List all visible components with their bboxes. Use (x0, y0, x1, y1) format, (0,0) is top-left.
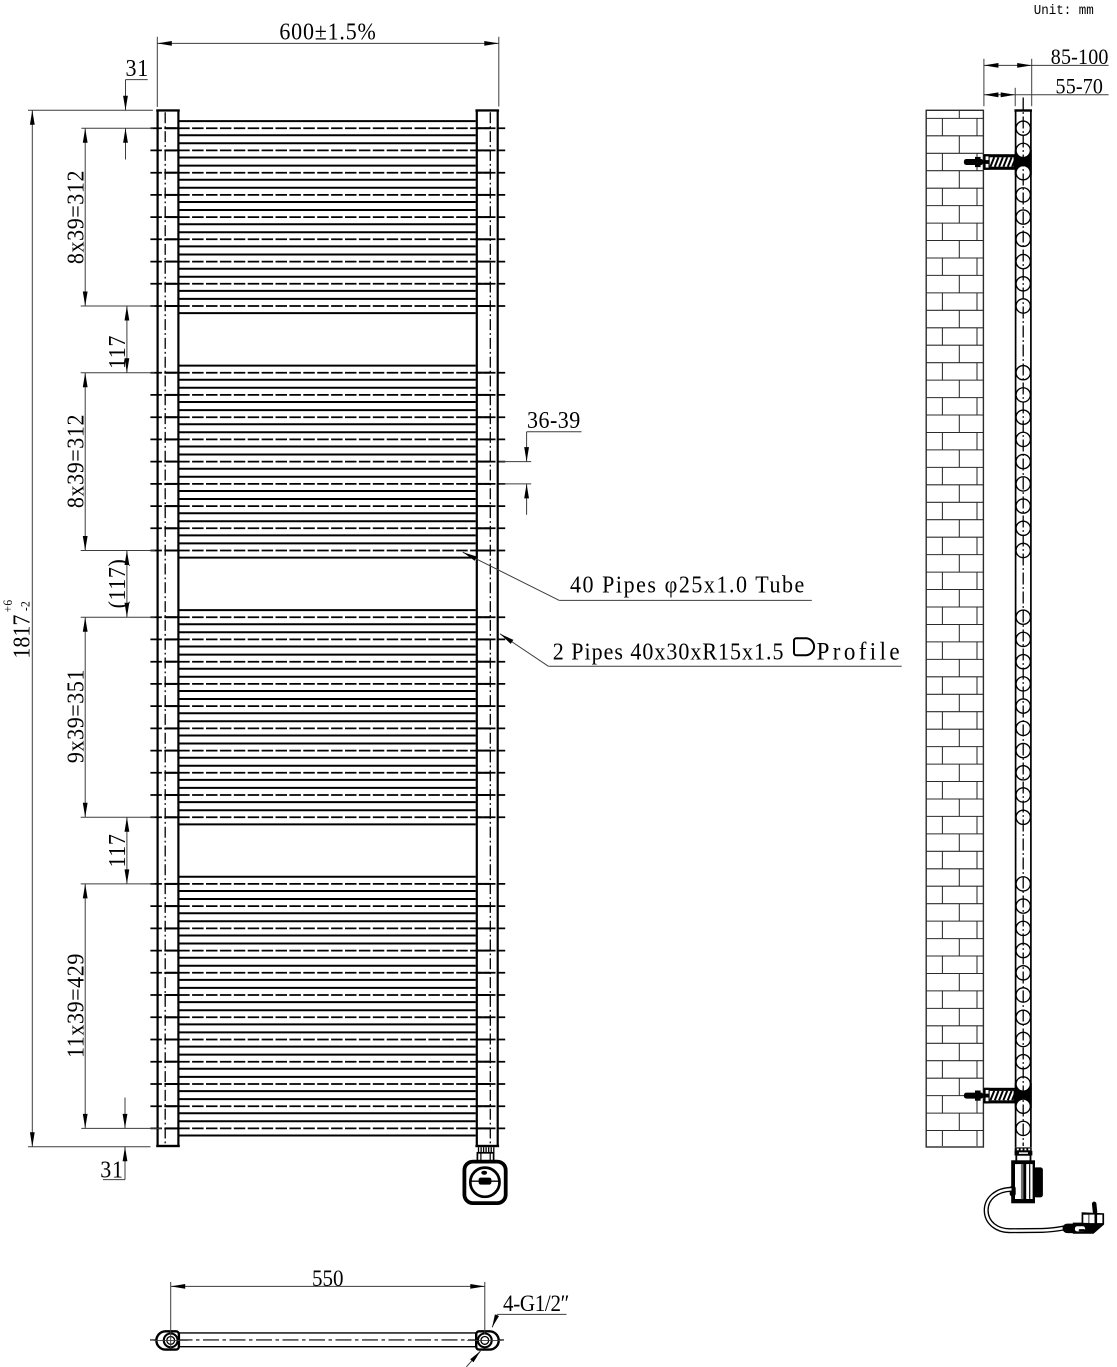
svg-text:40 Pipes φ25x1.0 Tube: 40 Pipes φ25x1.0 Tube (570, 571, 806, 598)
svg-text:-2: -2 (18, 601, 33, 611)
svg-text:117: 117 (104, 834, 131, 868)
svg-text:8x39=312: 8x39=312 (62, 414, 89, 508)
svg-text:+6: +6 (0, 600, 15, 613)
svg-text:600±1.5%: 600±1.5% (279, 18, 376, 45)
svg-text:Profile: Profile (817, 637, 903, 665)
svg-text:550: 550 (312, 1265, 343, 1291)
svg-text:2 Pipes 40x30xR15x1.5: 2 Pipes 40x30xR15x1.5 (553, 638, 785, 665)
svg-text:(117): (117) (104, 559, 131, 609)
svg-text:Unit: mm: Unit: mm (1034, 2, 1094, 18)
svg-text:8x39=312: 8x39=312 (62, 170, 89, 264)
svg-text:31: 31 (126, 55, 150, 82)
svg-text:55-70: 55-70 (1056, 73, 1104, 98)
svg-text:85-100: 85-100 (1051, 44, 1109, 69)
svg-text:9x39=351: 9x39=351 (62, 669, 89, 763)
svg-text:1817: 1817 (8, 615, 35, 659)
svg-text:4-G1/2″: 4-G1/2″ (503, 1290, 569, 1316)
svg-text:31: 31 (100, 1156, 124, 1183)
svg-text:36-39: 36-39 (527, 407, 581, 434)
svg-text:11x39=429: 11x39=429 (62, 953, 89, 1058)
svg-text:117: 117 (104, 335, 131, 369)
